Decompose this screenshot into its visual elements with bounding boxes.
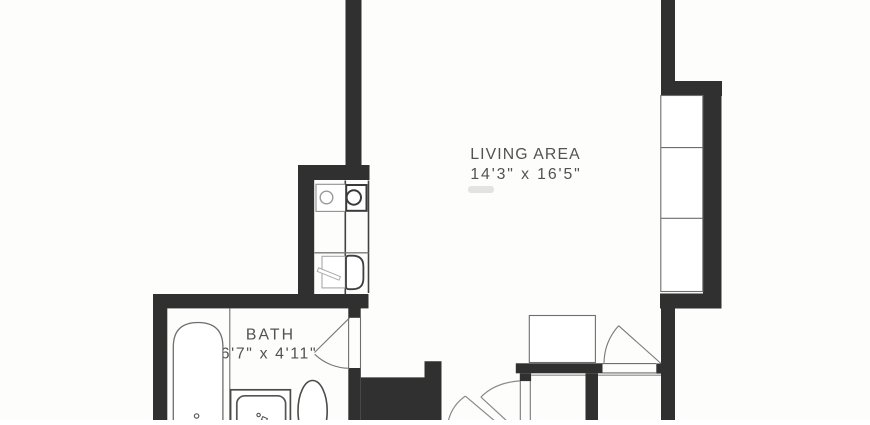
svg-text:LIVING AREA: LIVING AREA [470, 146, 580, 163]
svg-text:14'3" x 16'5": 14'3" x 16'5" [470, 166, 581, 183]
svg-text:6'7" x 4'11": 6'7" x 4'11" [221, 346, 317, 363]
svg-text:BATH: BATH [246, 327, 295, 344]
